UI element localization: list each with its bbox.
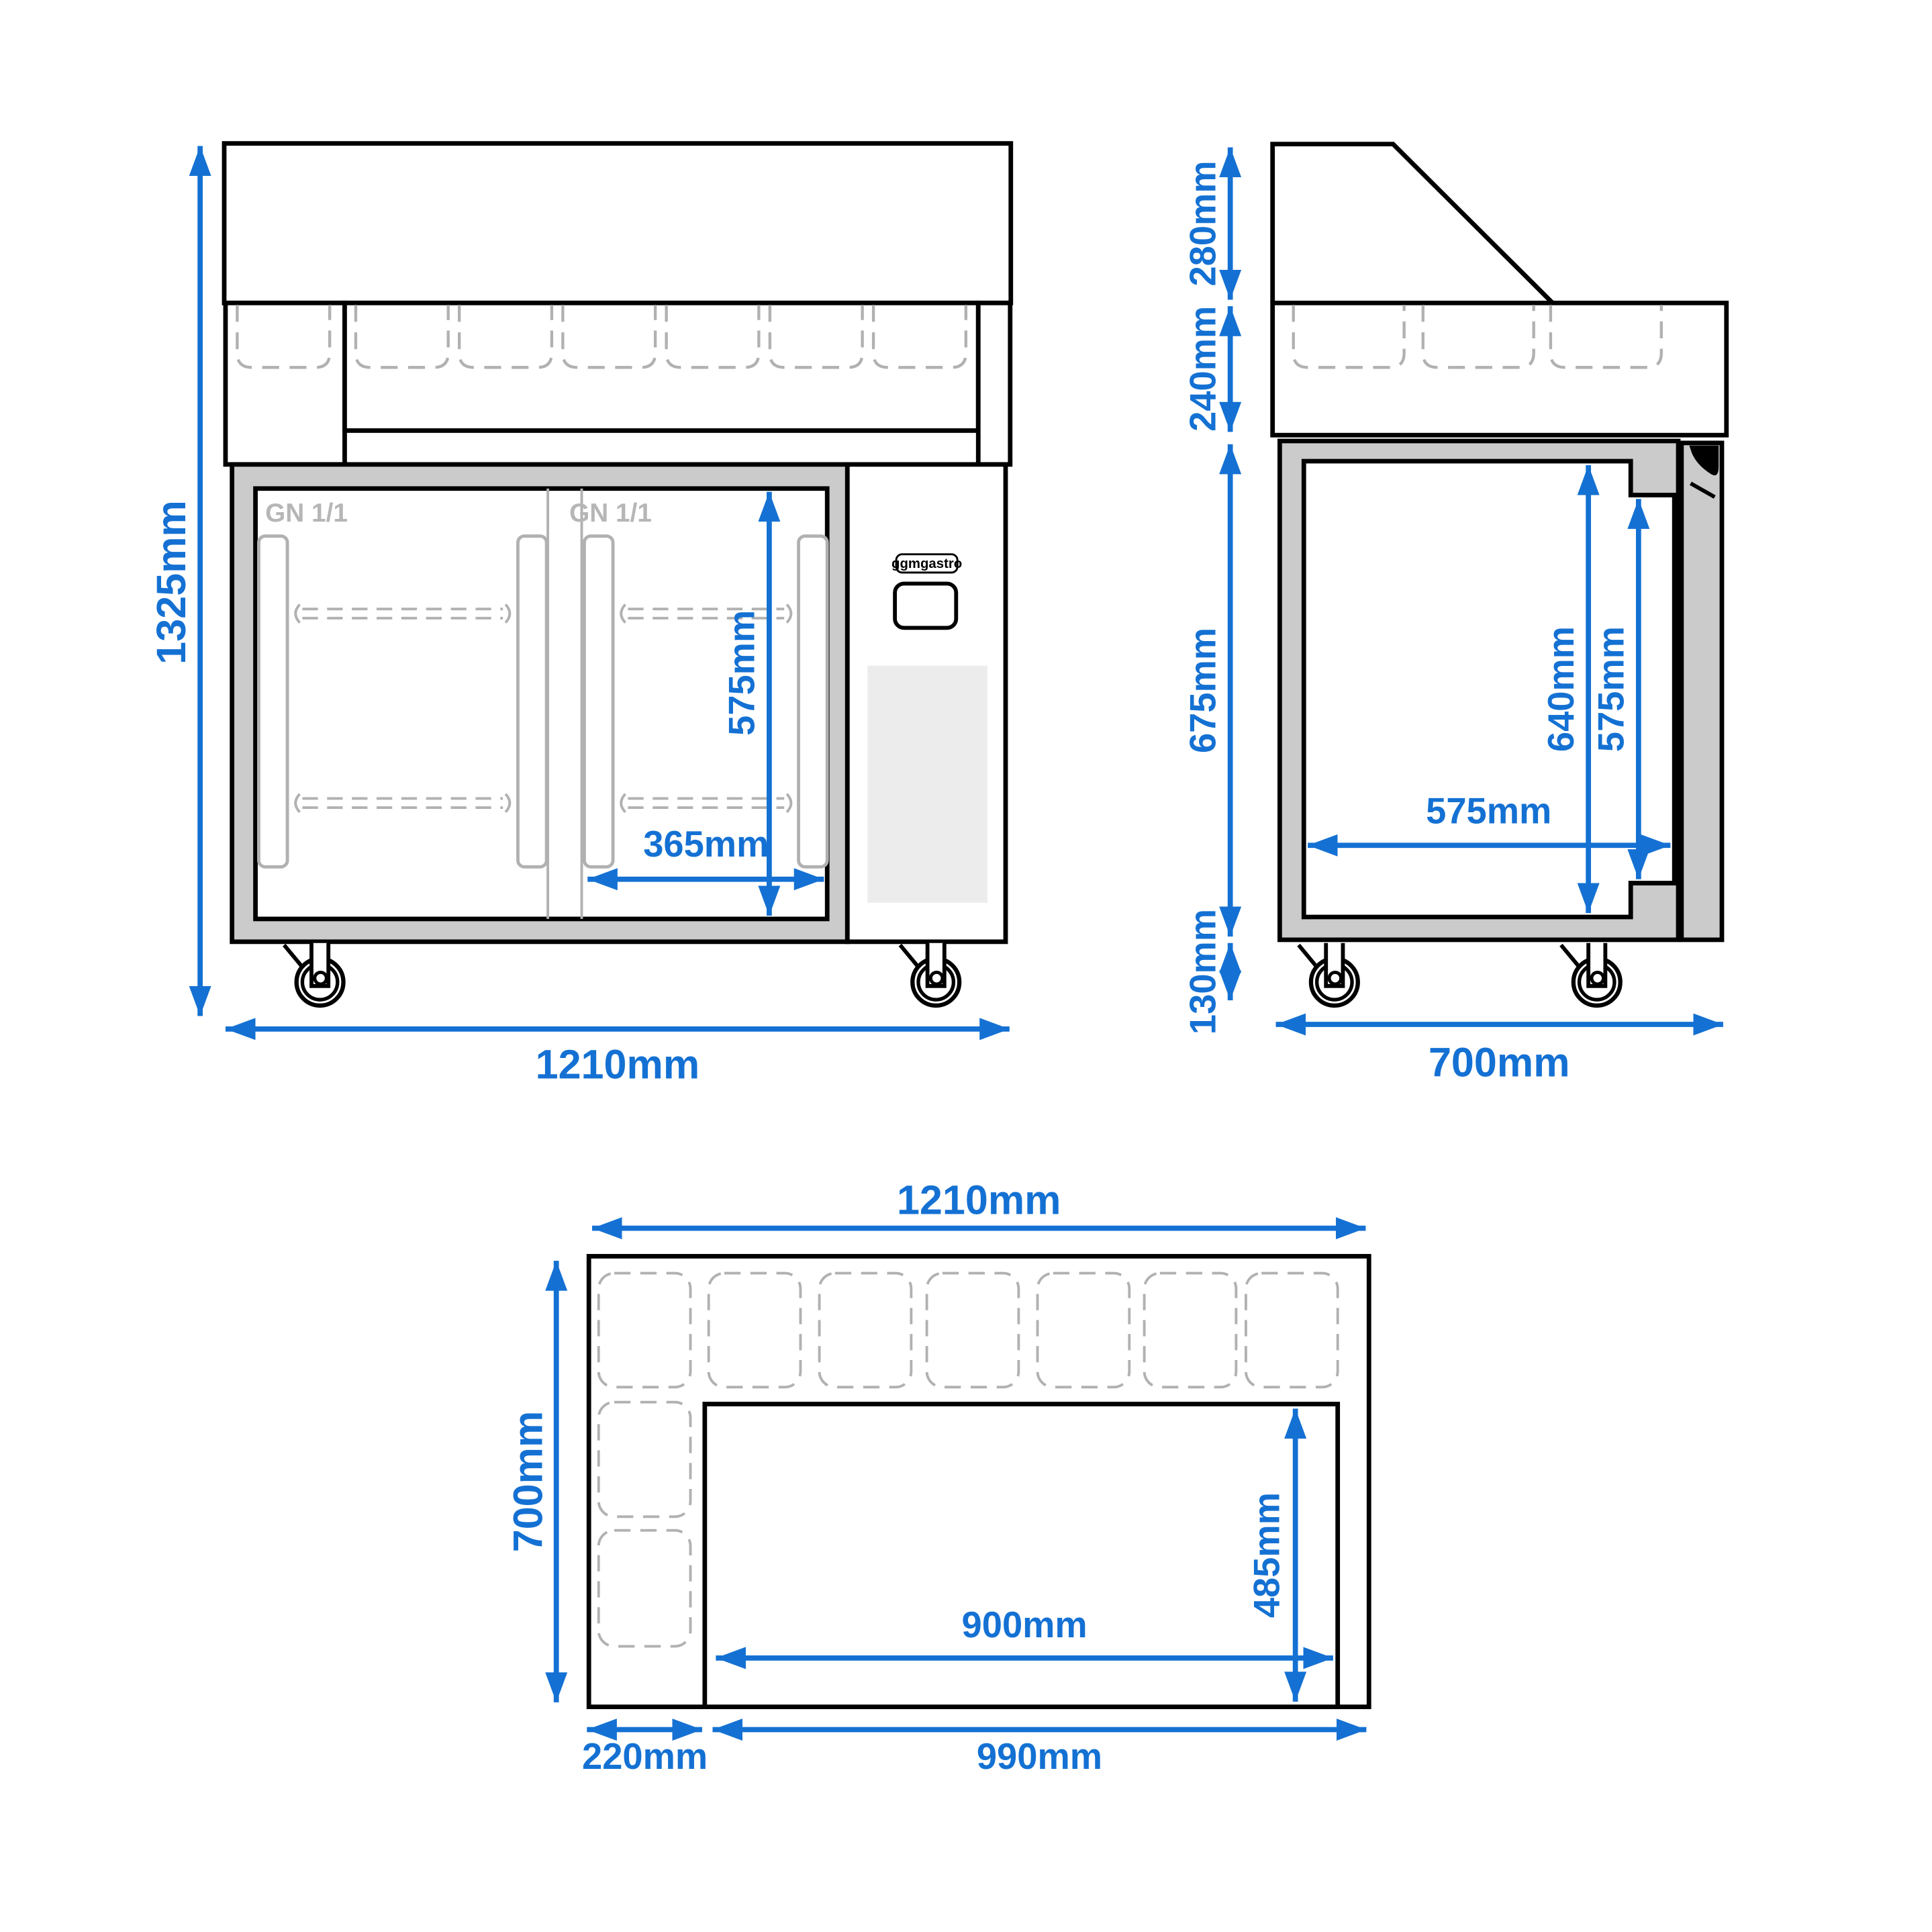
gn-label-right: GN 1/1 [569,499,652,528]
front-topping-right-strip [978,303,1010,465]
dim-cutout-width: 900mm [962,1604,1088,1645]
gn-label-left: GN 1/1 [265,499,348,528]
dim-top-total-width: 1210mm [897,1177,1061,1222]
top-counter-cutout [705,1404,1338,1707]
drawing-stage: GN 1/1 GN 1/1 ggmgastro 1325mm 1210mm 57… [29,0,1903,1885]
brand-logo-text: ggmgastro [891,557,962,571]
dim-left-section: 220mm [582,1736,708,1777]
dim-cutout-depth: 485mm [1247,1492,1288,1618]
front-hood [224,144,1011,303]
vent-panel [868,666,987,903]
front-door-handle [518,536,547,867]
dim-body-height: 675mm [1183,628,1224,753]
dim-cavity-height-right: 575mm [1591,626,1632,752]
dim-cavity-height: 640mm [1541,626,1582,752]
dim-topping-height: 240mm [1183,306,1224,432]
side-topping-band [1273,303,1727,435]
front-door-handle [259,536,288,867]
dim-front-inner-height: 575mm [722,610,763,736]
front-topping-left-box [226,303,345,465]
dim-front-total-height: 1325mm [148,500,194,665]
top-view: 1210mm 700mm 485mm 900mm 220mm 990mm [505,1177,1369,1776]
dim-bottom-section: 990mm [977,1736,1102,1777]
front-door-handle [799,536,828,867]
dim-castor-height: 130mm [1183,909,1224,1034]
dim-front-total-width: 1210mm [536,1042,700,1088]
control-panel [895,583,956,628]
dim-top-total-depth: 700mm [505,1411,551,1553]
front-door-handle [585,536,614,867]
dim-front-door-width: 365mm [643,824,769,865]
side-door-panel [1682,443,1722,940]
dim-cavity-depth: 575mm [1426,790,1551,831]
dim-hood-height: 280mm [1183,160,1224,286]
dim-total-depth: 700mm [1429,1040,1570,1085]
dimension-drawing: GN 1/1 GN 1/1 ggmgastro 1325mm 1210mm 57… [29,5,1903,1880]
